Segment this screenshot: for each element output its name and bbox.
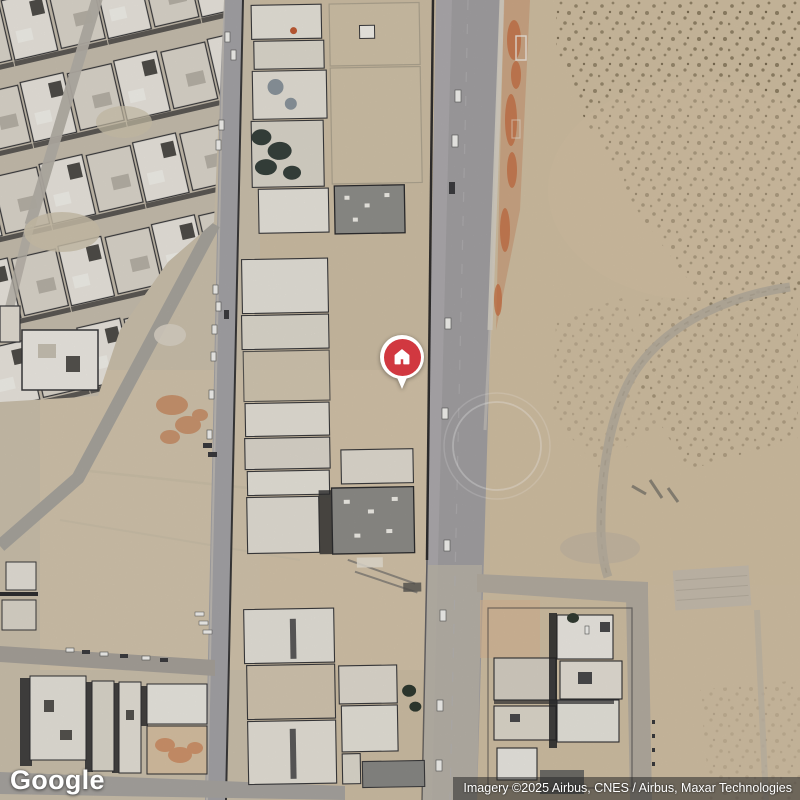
google-logo[interactable]: Google: [10, 765, 105, 796]
grain-overlay: [0, 0, 800, 800]
property-marker[interactable]: [380, 335, 424, 395]
satellite-imagery: [0, 0, 800, 800]
map-attribution: Imagery ©2025 Airbus, CNES / Airbus, Max…: [453, 777, 800, 800]
marker-inner: [384, 339, 421, 376]
house-icon: [392, 347, 412, 367]
satellite-map[interactable]: Google Imagery ©2025 Airbus, CNES / Airb…: [0, 0, 800, 800]
marker-circle: [380, 335, 424, 379]
